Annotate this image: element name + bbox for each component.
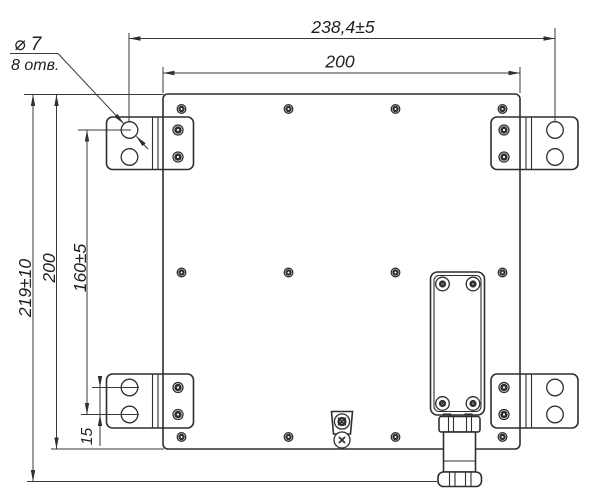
box-screw: [466, 277, 480, 291]
box-screw: [466, 397, 480, 411]
leader-tail: [136, 136, 148, 149]
technical-drawing-page: 238,4±5 200 219±10 200 160±5 15 ⌀ 7 8 от…: [0, 0, 600, 502]
engineering-drawing: 238,4±5 200 219±10 200 160±5 15 ⌀ 7 8 от…: [0, 0, 600, 502]
plate-screw: [391, 433, 400, 442]
plate-screw: [391, 105, 400, 114]
plate-screw: [284, 105, 293, 114]
plate-screw: [284, 433, 293, 442]
dim-plate-height-label: 200: [39, 253, 59, 283]
plate-screw: [177, 433, 186, 442]
plate-screw: [498, 268, 507, 277]
bracket-screw: [499, 383, 509, 393]
flange-hole: [121, 149, 138, 166]
box-screw: [436, 277, 450, 291]
plate-screw: [284, 268, 293, 277]
hole-callout-count-label: 8 отв.: [11, 57, 59, 74]
bracket-screw: [173, 125, 183, 135]
dim-plate-width-label: 200: [324, 52, 354, 72]
gland-collar: [439, 417, 480, 433]
junction-box: [431, 272, 485, 415]
cable-clamp: [332, 412, 353, 449]
dim-hole-span-label: 160±5: [70, 243, 90, 292]
bracket-screw: [499, 125, 509, 135]
dim-hole-pitch-label: 15: [79, 428, 96, 446]
dim-overall-height-label: 219±10: [15, 259, 35, 319]
plate-screw: [177, 105, 186, 114]
plate-screw: [498, 105, 507, 114]
bracket-screw: [499, 410, 509, 420]
leader-line: [58, 54, 124, 124]
cable-gland: [438, 414, 482, 487]
bracket-screw: [173, 383, 183, 393]
clamp-screw-top: [334, 414, 349, 429]
flange-hole: [547, 379, 564, 396]
gland-body: [444, 432, 476, 472]
dim-overall-width-label: 238,4±5: [310, 17, 374, 37]
clamp-screw-bottom: [334, 432, 350, 448]
gland-nut: [438, 472, 482, 487]
flange-hole: [547, 406, 564, 423]
flange-hole: [547, 149, 564, 166]
hole-callout-diameter-label: ⌀ 7: [14, 34, 43, 55]
bracket-screw: [173, 410, 183, 420]
plate-screw: [498, 433, 507, 442]
flange-hole: [547, 122, 564, 139]
bracket-screw: [173, 152, 183, 162]
plate-screw: [177, 268, 186, 277]
plate-screw: [391, 268, 400, 277]
bracket-screw: [499, 152, 509, 162]
box-screw: [436, 397, 450, 411]
